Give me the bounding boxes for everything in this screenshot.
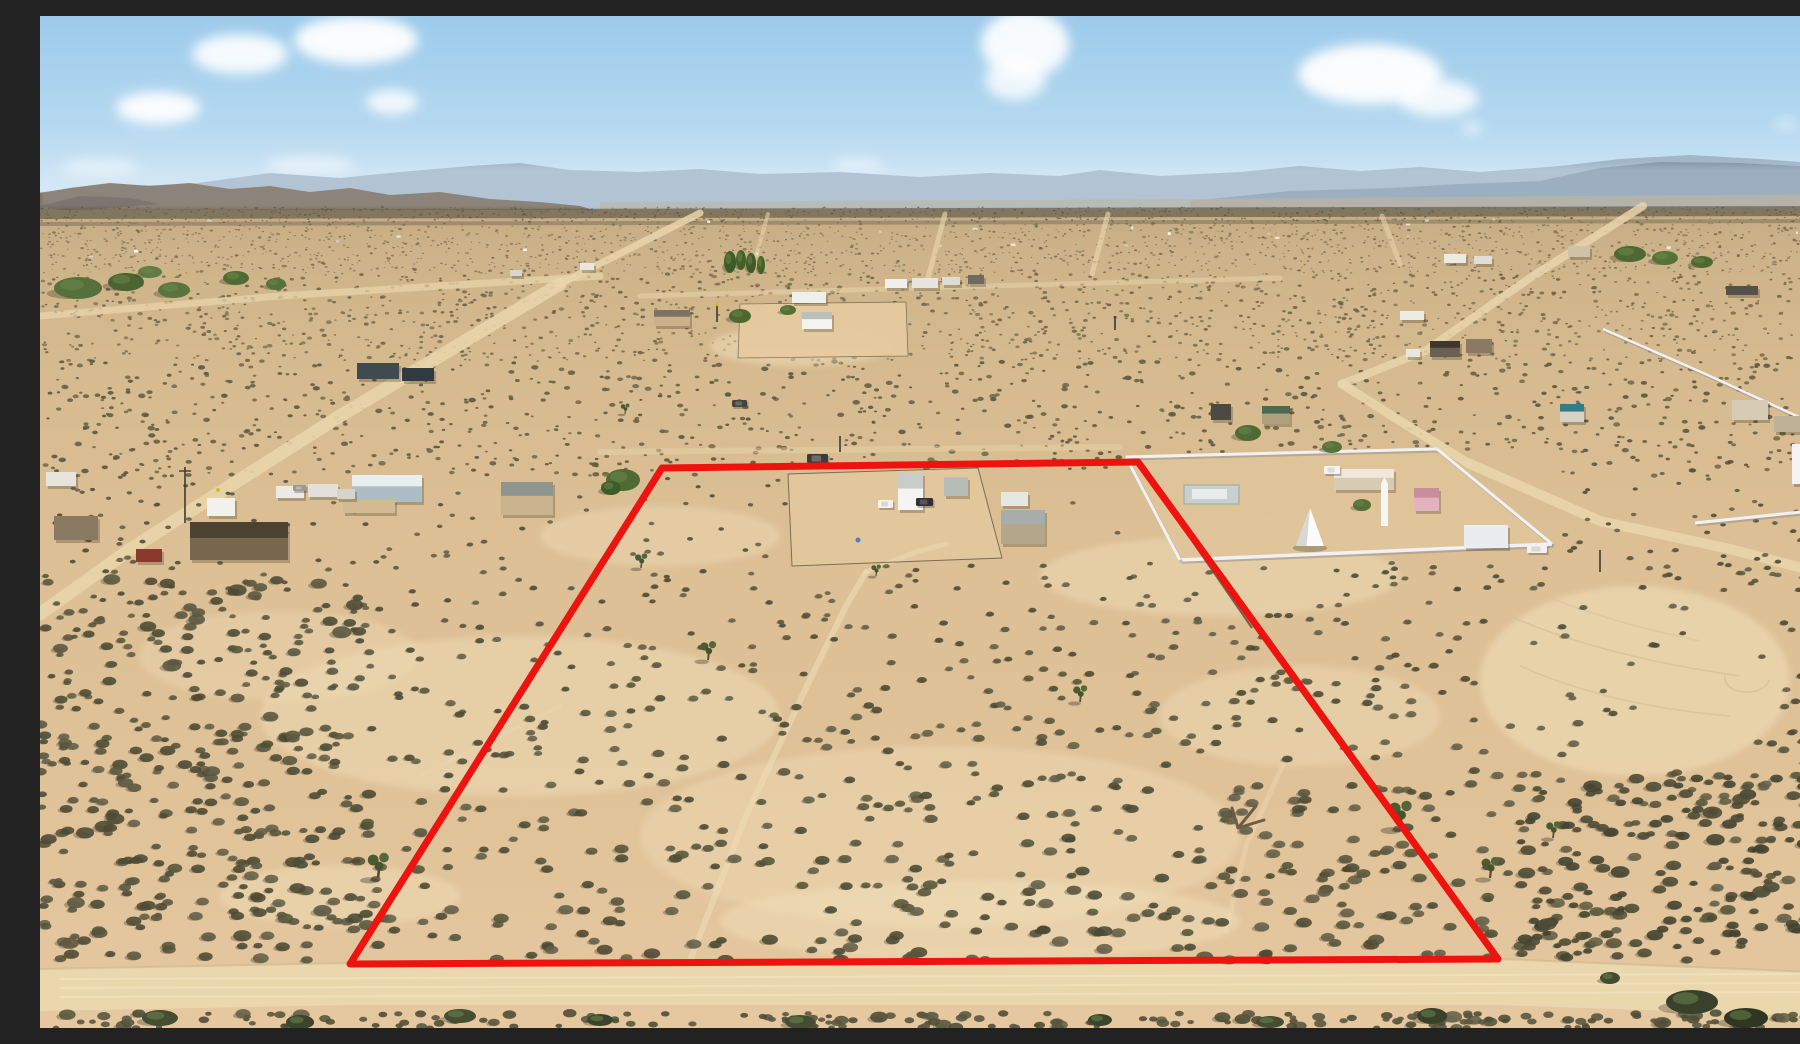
car-grey xyxy=(293,485,308,493)
rv-row-3 xyxy=(942,277,962,288)
dark-car xyxy=(916,498,935,508)
pyramid-roof-house xyxy=(501,482,555,518)
parcel-garage xyxy=(1001,510,1047,547)
ur-house-3 xyxy=(1466,339,1494,356)
aerial-photo: Aerial drone photograph of a flat desert… xyxy=(40,16,1800,1028)
rv-row-1 xyxy=(885,279,909,291)
far-left-shed xyxy=(46,472,78,489)
teal-roof-house xyxy=(1560,404,1586,425)
trailer-2 xyxy=(308,484,340,500)
truck-distant xyxy=(732,400,749,409)
gray-shed xyxy=(968,275,986,287)
container-dark-1 xyxy=(357,363,401,382)
tan-outbuilding xyxy=(343,500,397,516)
trailer-3 xyxy=(337,489,357,502)
pink-casita xyxy=(1414,488,1441,514)
right-shack-2 xyxy=(1774,416,1800,435)
container-dark-2 xyxy=(402,368,436,384)
white-cube-building xyxy=(1792,444,1800,487)
dark-shed xyxy=(1211,404,1233,423)
ur-trailer-2 xyxy=(1474,256,1494,267)
aerial-photo-canvas xyxy=(40,16,1800,1028)
green-roof-cabin xyxy=(1262,406,1292,427)
shipping-container xyxy=(1464,525,1510,551)
white-rv xyxy=(207,498,237,519)
shed-small-1 xyxy=(580,263,596,273)
white-obelisk xyxy=(1381,477,1388,526)
ur-dark-trailer xyxy=(1726,286,1760,298)
ur-house-2 xyxy=(1430,341,1462,360)
white-house xyxy=(802,312,834,332)
tan-house xyxy=(654,310,692,329)
ur-trailer-1 xyxy=(1444,254,1468,266)
right-shack-1 xyxy=(1732,400,1770,423)
parcel-trailer xyxy=(1001,492,1030,509)
car-white-2 xyxy=(1527,545,1549,555)
parcel-shed xyxy=(944,477,970,499)
ur-house xyxy=(1568,246,1592,260)
rv-row-2 xyxy=(912,278,940,291)
white-van xyxy=(1324,466,1342,476)
white-roof-building xyxy=(792,292,828,306)
ur-white-shed xyxy=(1406,349,1422,360)
concrete-pad xyxy=(1184,485,1239,504)
red-car xyxy=(136,549,164,565)
shed-small-2 xyxy=(510,270,524,279)
far-left-ruin xyxy=(54,516,100,543)
white-car-1 xyxy=(878,500,895,510)
ur-rv-1 xyxy=(1400,311,1426,323)
ruined-homestead xyxy=(190,522,290,563)
